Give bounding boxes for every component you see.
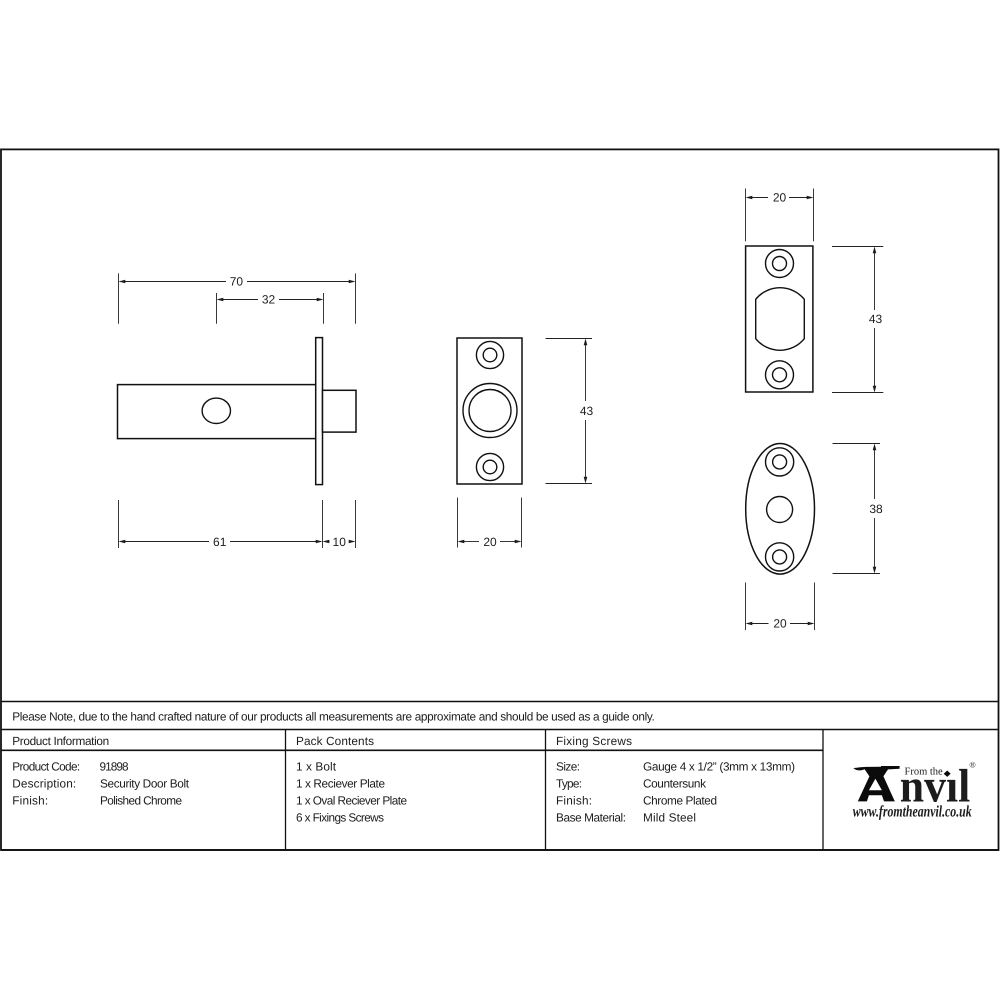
svg-text:Product Information: Product Information (12, 734, 109, 748)
svg-text:Countersunk: Countersunk (643, 777, 706, 791)
svg-text:61: 61 (213, 535, 227, 549)
svg-text:Fixing Screws: Fixing Screws (556, 734, 632, 748)
svg-text:20: 20 (773, 191, 787, 205)
svg-text:70: 70 (230, 275, 244, 289)
svg-text:Product Code:: Product Code: (12, 760, 80, 774)
svg-text:1 x Bolt: 1 x Bolt (296, 760, 337, 774)
svg-text:1 x Reciever Plate: 1 x Reciever Plate (296, 777, 385, 791)
svg-text:Mild Steel: Mild Steel (643, 811, 696, 825)
svg-text:Pack Contents: Pack Contents (296, 734, 374, 748)
svg-text:1 x Oval Reciever Plate: 1 x Oval Reciever Plate (296, 794, 407, 808)
svg-text:Base Material:: Base Material: (556, 811, 626, 825)
svg-text:Please Note, due to the hand c: Please Note, due to the hand crafted nat… (12, 710, 655, 724)
svg-text:Size:: Size: (556, 760, 580, 774)
svg-text:91898: 91898 (100, 760, 129, 774)
svg-text:43: 43 (580, 404, 594, 418)
svg-text:6 x Fixings Screws: 6 x Fixings Screws (296, 811, 384, 825)
svg-text:38: 38 (869, 502, 883, 516)
svg-text:20: 20 (773, 617, 787, 631)
svg-text:Finish:: Finish: (12, 794, 48, 808)
svg-text:Chrome Plated: Chrome Plated (643, 794, 717, 808)
svg-text:Finish:: Finish: (556, 794, 592, 808)
svg-text:20: 20 (483, 535, 497, 549)
svg-text:www.fromtheanvil.co.uk: www.fromtheanvil.co.uk (853, 804, 972, 821)
svg-text:43: 43 (869, 312, 883, 326)
svg-text:Type:: Type: (556, 777, 582, 791)
svg-text:10: 10 (333, 535, 347, 549)
svg-text:32: 32 (262, 293, 276, 307)
svg-text:Polished Chrome: Polished Chrome (100, 794, 182, 808)
svg-text:Gauge 4 x 1/2” (3mm x 13mm): Gauge 4 x 1/2” (3mm x 13mm) (643, 760, 795, 774)
svg-text:Description:: Description: (12, 777, 76, 791)
svg-text:Security Door Bolt: Security Door Bolt (100, 777, 190, 791)
svg-text:®: ® (969, 760, 976, 770)
